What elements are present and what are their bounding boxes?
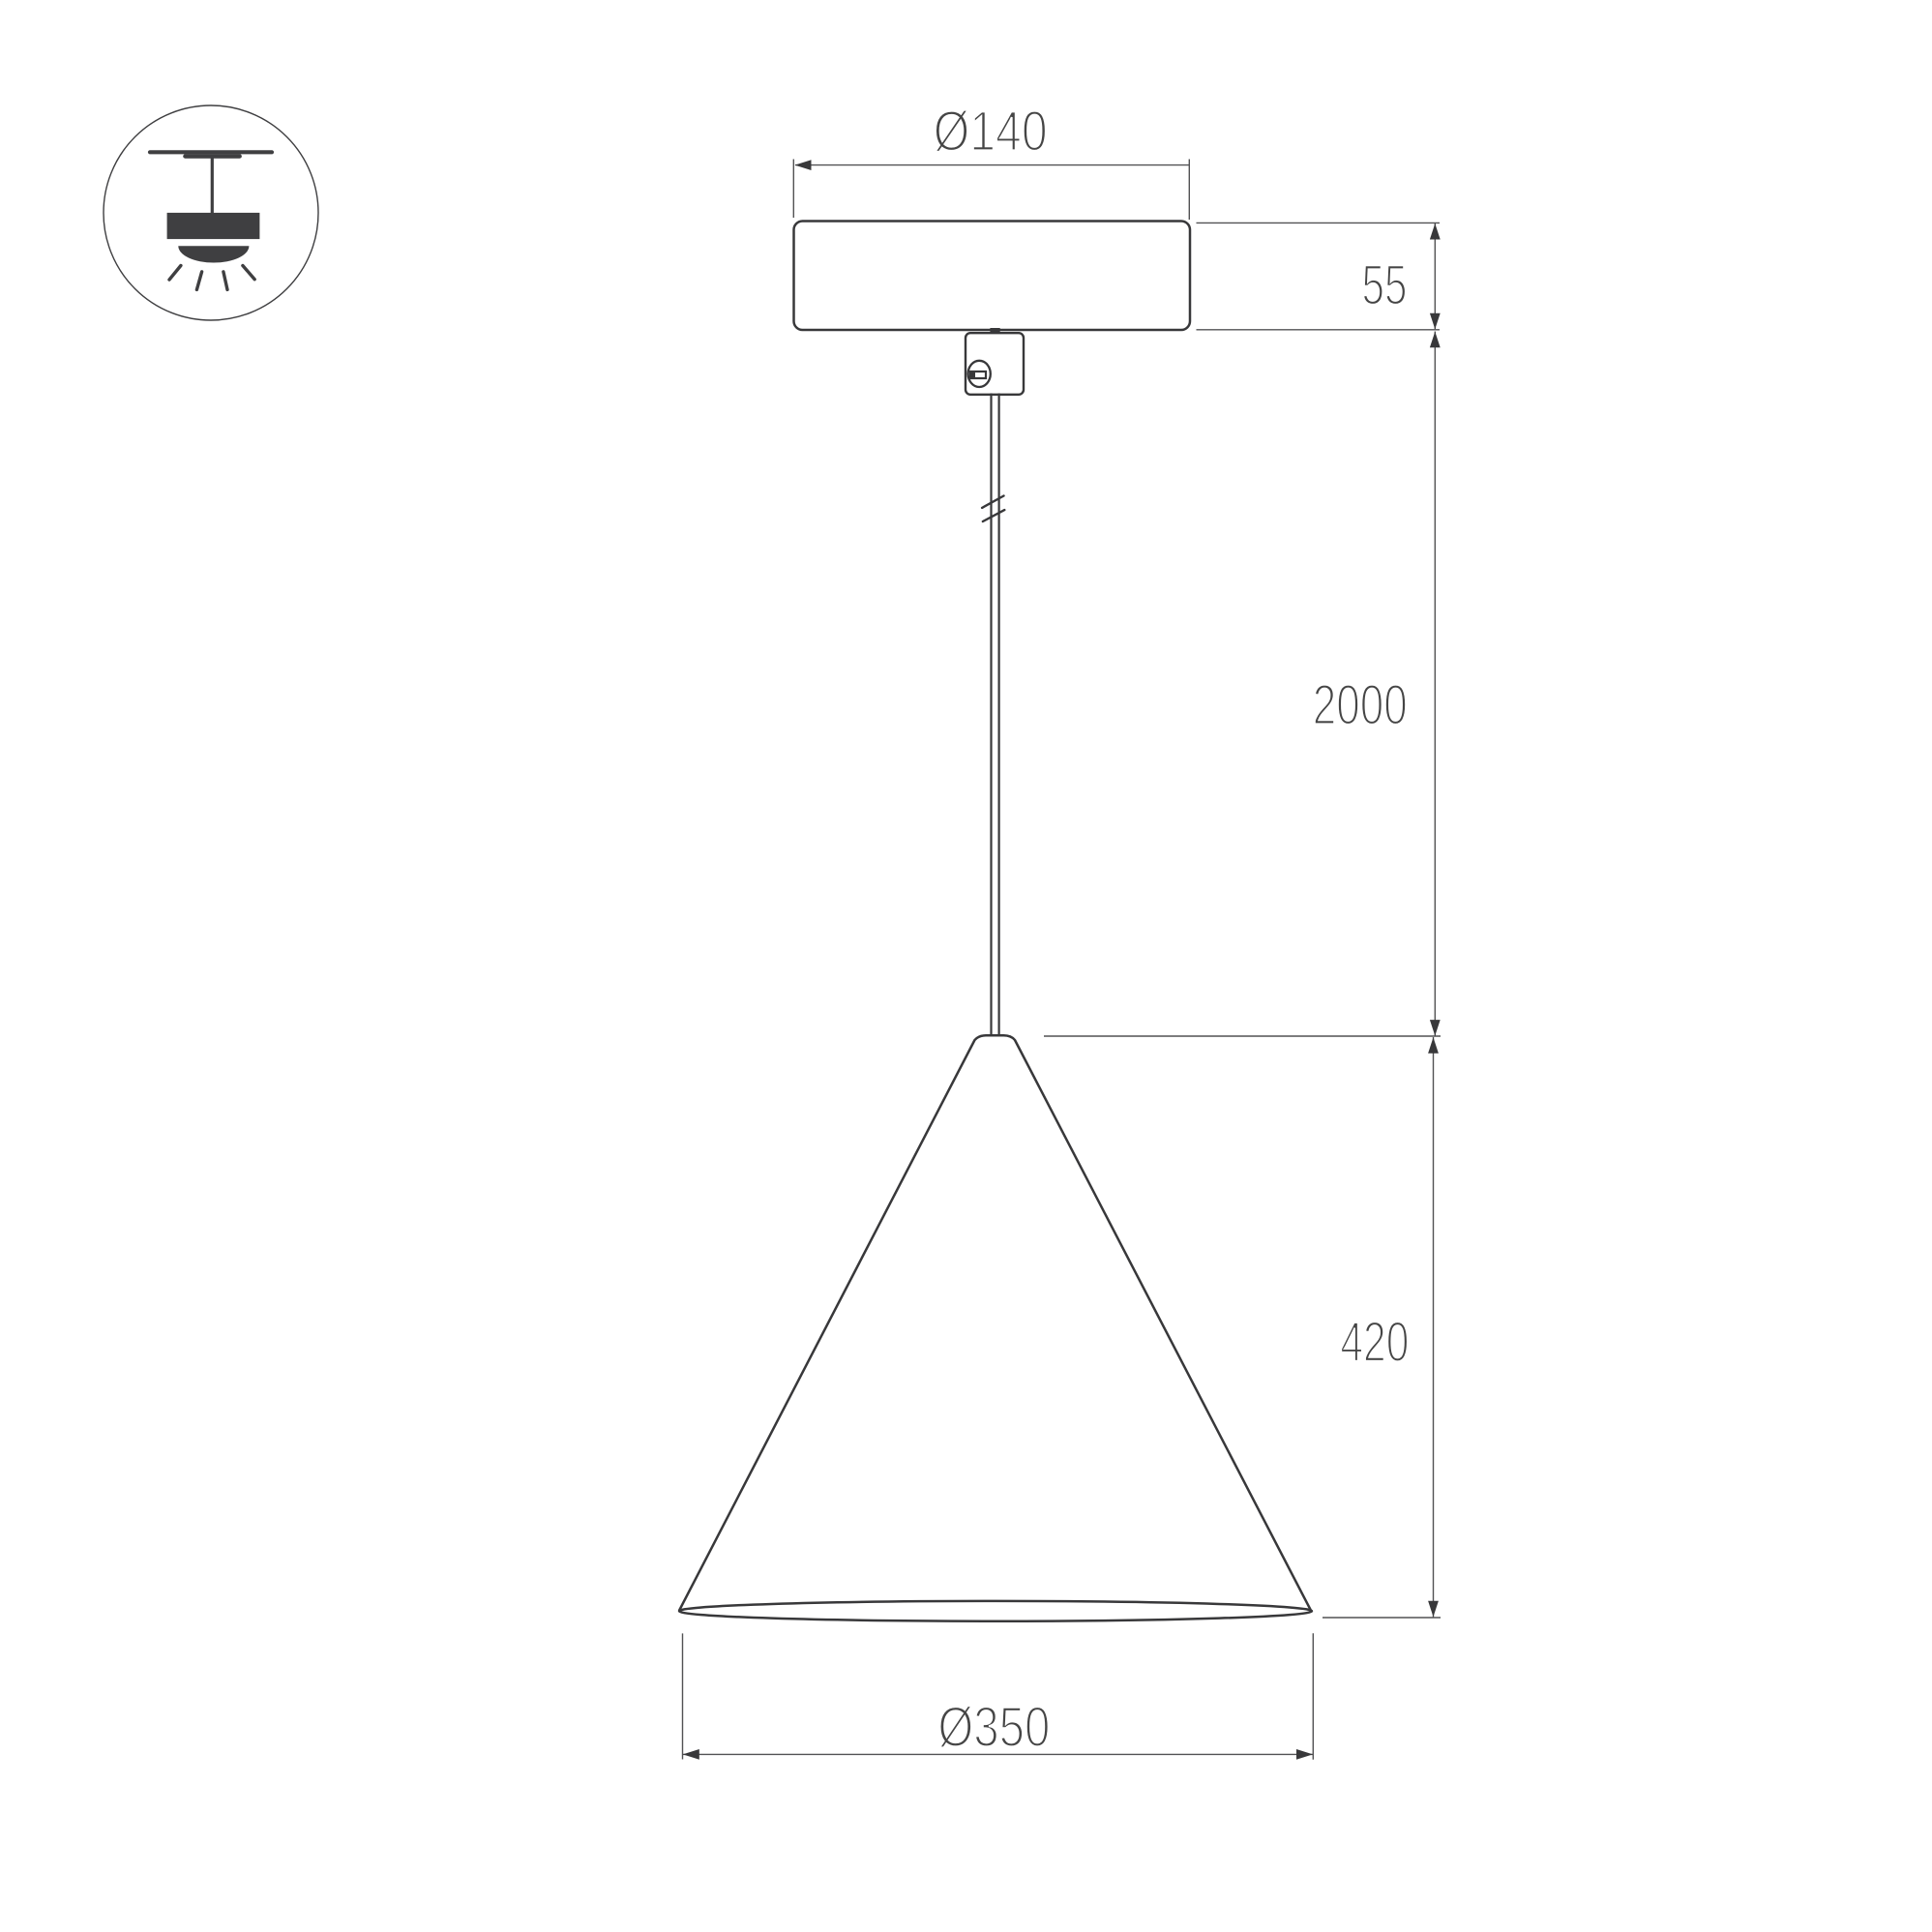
svg-text:420: 420 bbox=[1340, 1311, 1409, 1374]
svg-text:2000: 2000 bbox=[1313, 674, 1408, 737]
svg-text:Ø350: Ø350 bbox=[937, 1696, 1050, 1759]
svg-text:55: 55 bbox=[1362, 254, 1408, 317]
svg-text:Ø140: Ø140 bbox=[934, 101, 1048, 163]
